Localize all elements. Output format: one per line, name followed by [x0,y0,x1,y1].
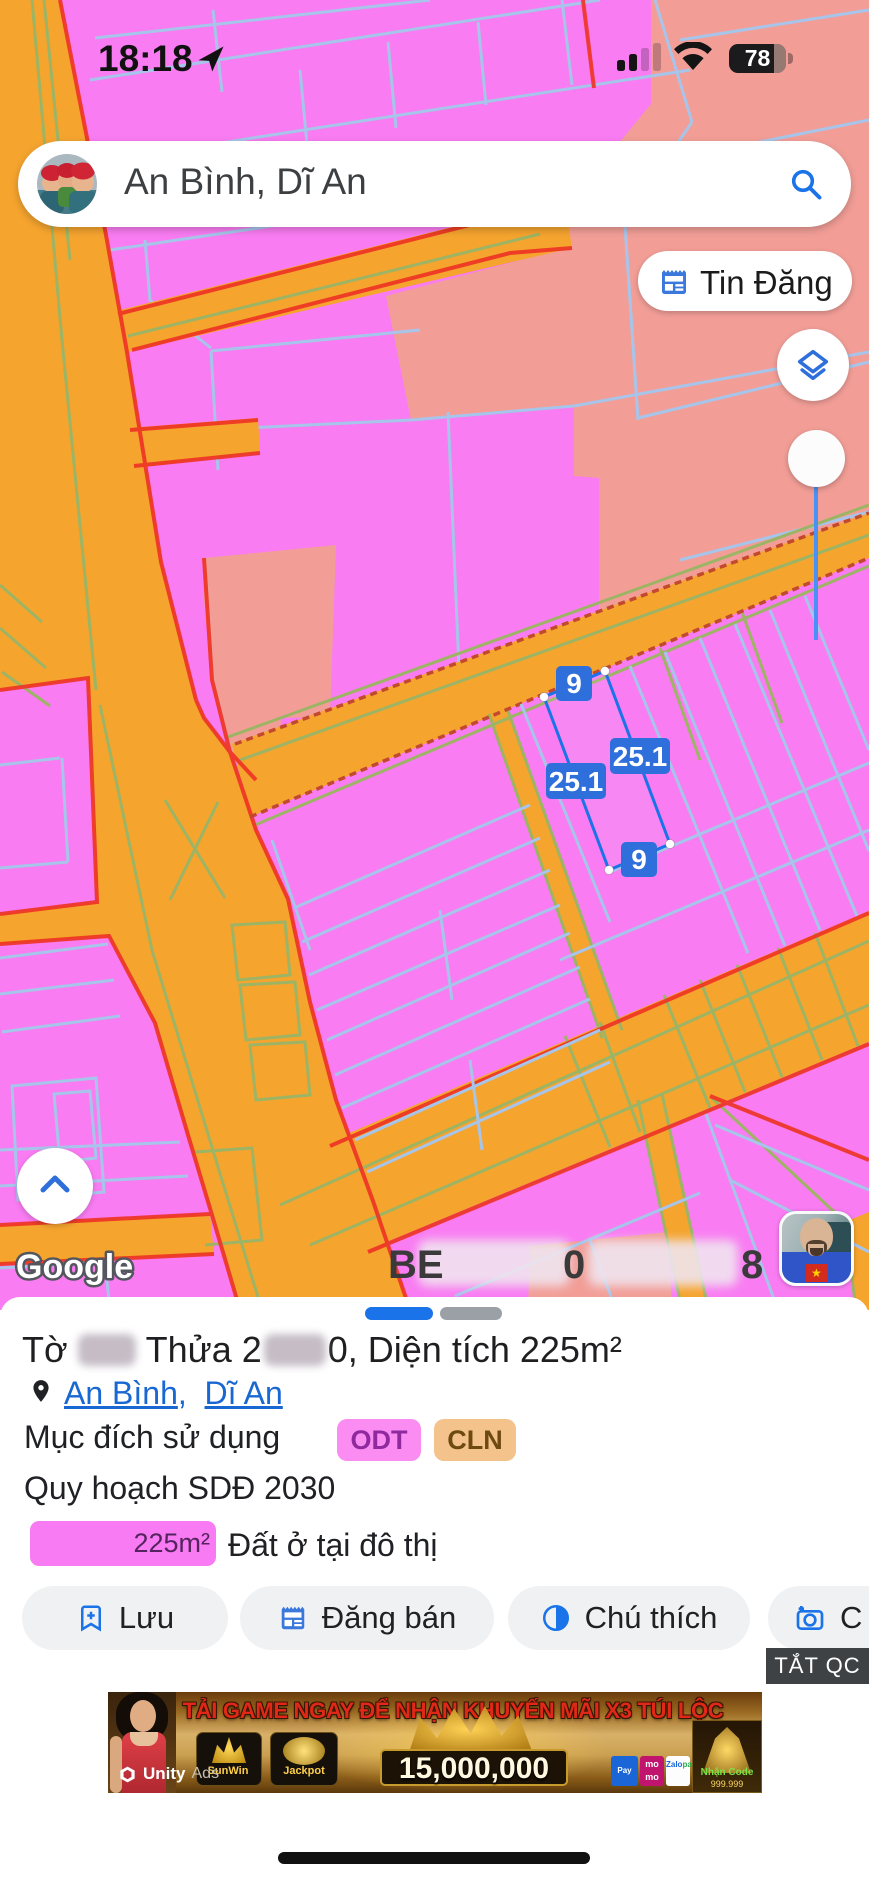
svg-text:25.1: 25.1 [613,741,668,772]
svg-text:9: 9 [631,844,647,875]
svg-text:Google: Google [16,1248,133,1286]
svg-text:9: 9 [566,668,582,699]
svg-text:25.1: 25.1 [549,766,604,797]
